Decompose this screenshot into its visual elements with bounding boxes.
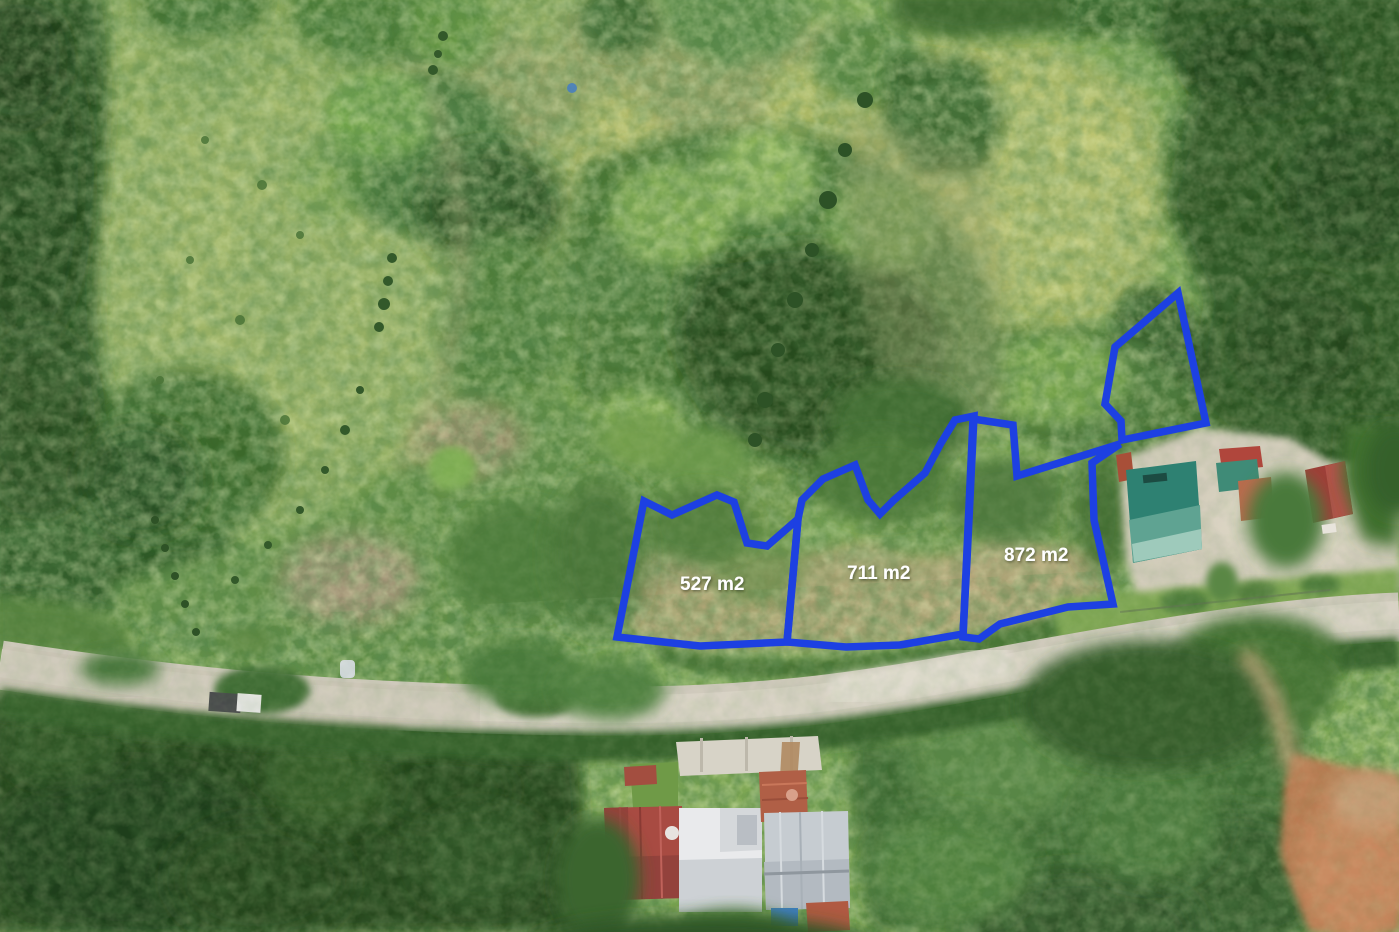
svg-text:527 m2: 527 m2 <box>680 574 744 595</box>
svg-text:711 m2: 711 m2 <box>847 563 910 584</box>
svg-text:872 m2: 872 m2 <box>1004 545 1068 566</box>
